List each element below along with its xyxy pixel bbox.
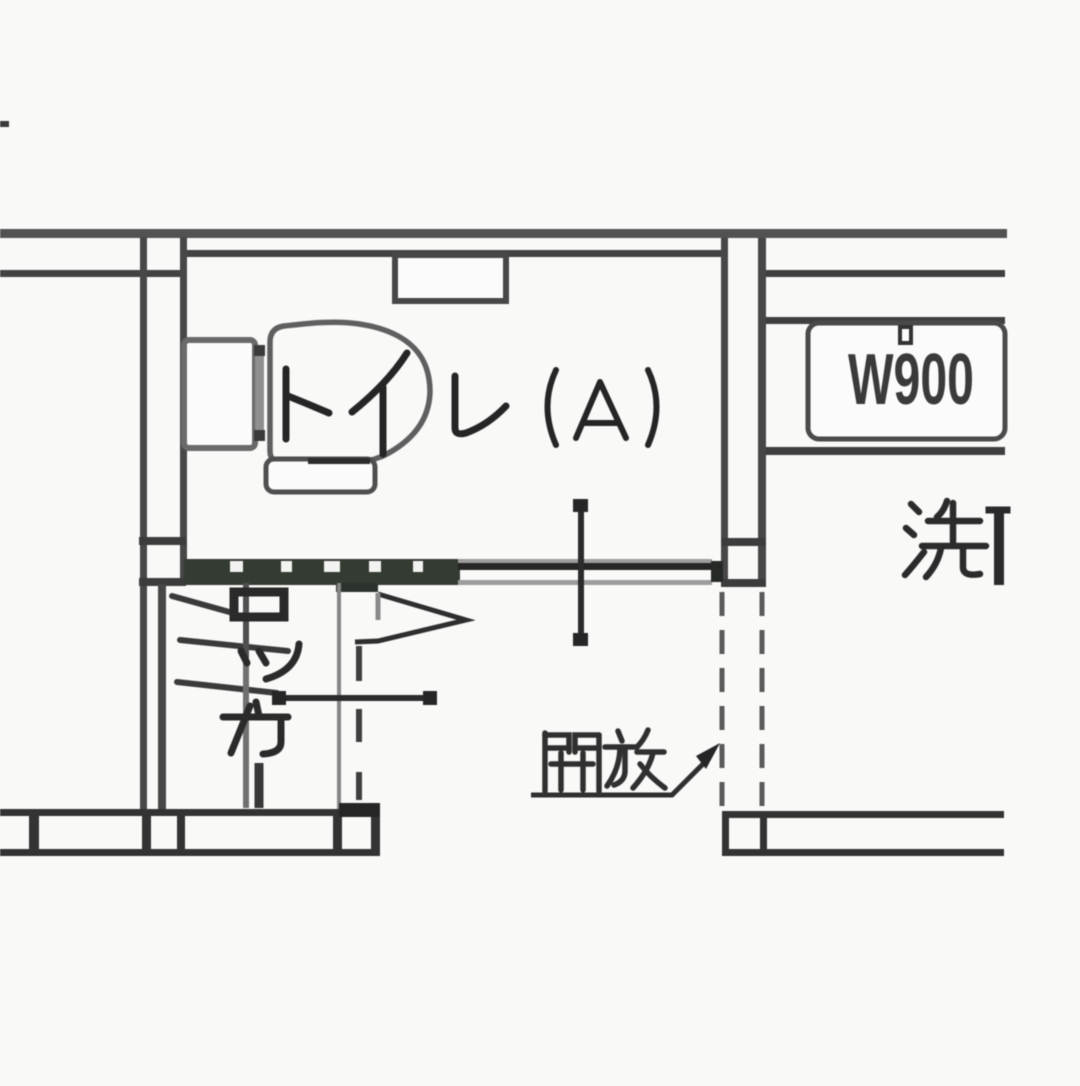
svg-text:W900: W900	[848, 339, 974, 419]
